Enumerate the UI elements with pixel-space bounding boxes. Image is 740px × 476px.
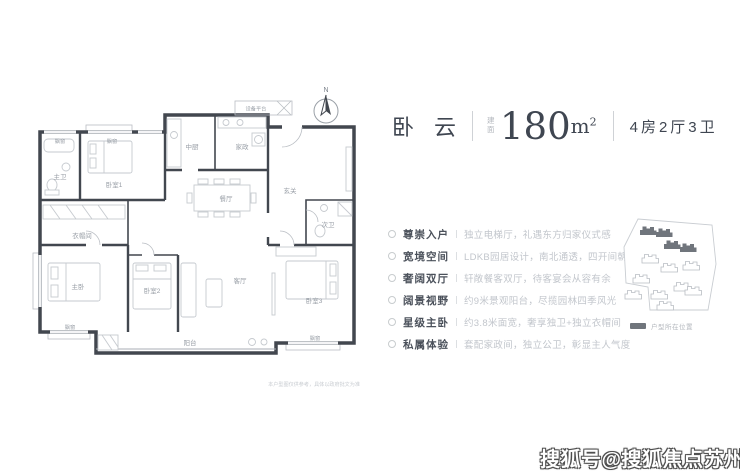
feature-desc: 约3.8米面宽，奢享独卫+独立衣帽间	[464, 315, 621, 329]
room-label-master-bath: 主卫	[54, 172, 68, 181]
area-unit: m2	[571, 114, 597, 138]
legend-swatch	[630, 323, 646, 329]
area-value: 180	[500, 108, 571, 145]
feature-desc: 轩敞餐客双厅，待客宴会从容有余	[464, 271, 611, 285]
feature-label: 宽境空间	[403, 249, 449, 264]
room-label-bedroom3: 卧室3	[306, 296, 323, 305]
feature-divider	[456, 252, 457, 260]
room-label-dining: 餐厅	[220, 194, 234, 203]
room-label-bay-window: 飘窗	[55, 137, 65, 145]
compass-north-label: N	[323, 87, 328, 94]
feature-row: 阔景视野 约9米景观阳台，尽揽园林四季风光	[388, 295, 637, 305]
feature-desc: LDKB园居设计，南北通透，四开间朝南	[464, 249, 637, 263]
area-prefix: 建面	[487, 117, 497, 134]
feature-label: 尊崇入户	[403, 227, 449, 242]
feature-row: 尊崇入户 独立电梯厅，礼遇东方归家仪式感	[388, 229, 637, 239]
room-label-bath2: 次卫	[322, 220, 336, 229]
bullet-ring-icon	[388, 252, 396, 260]
feature-row: 星级主卧 约3.8米面宽，奢享独卫+独立衣帽间	[388, 317, 637, 327]
room-label-laundry: 家政	[236, 142, 250, 151]
feature-label: 阔景视野	[403, 293, 449, 308]
site-plan-map	[616, 214, 728, 318]
header-divider	[613, 111, 614, 141]
plan-disclaimer: 本户型图仅供参考，具体以政府批文为准	[248, 380, 360, 388]
unit-name: 卧云	[392, 110, 476, 142]
feature-list: 尊崇入户 独立电梯厅，礼遇东方归家仪式感 宽境空间 LDKB园居设计，南北通透，…	[388, 229, 637, 349]
room-label-closet: 衣帽间	[72, 231, 92, 240]
room-label-bay-window: 飘窗	[65, 323, 75, 331]
feature-row: 私属体验 套配家政间，独立公卫，彰显主人气度	[388, 339, 637, 349]
compass-icon: N	[306, 84, 346, 130]
feature-label: 私属体验	[403, 337, 449, 352]
bullet-ring-icon	[388, 274, 396, 282]
bullet-ring-icon	[388, 318, 396, 326]
bullet-ring-icon	[388, 296, 396, 304]
bullet-ring-icon	[388, 340, 396, 348]
area-unit-m: m	[571, 114, 590, 138]
feature-desc: 独立电梯厅，礼遇东方归家仪式感	[464, 227, 611, 241]
unit-header: 卧云 建面 180 m2 4房2厅3卫	[392, 104, 718, 148]
room-label-living: 客厅	[234, 276, 248, 285]
watermark-text: 搜狐号@搜狐焦点苏州站	[540, 443, 740, 472]
feature-row: 奢阔双厅 轩敞餐客双厅，待客宴会从容有余	[388, 273, 637, 283]
room-label-kitchen-mid: 中厨	[186, 142, 200, 151]
room-spec: 4房2厅3卫	[630, 116, 718, 137]
feature-row: 宽境空间 LDKB园居设计，南北通透，四开间朝南	[388, 251, 637, 261]
feature-label: 星级主卧	[403, 315, 449, 330]
room-label-foyer: 玄关	[284, 186, 298, 195]
legend-text: 户型所在位置	[651, 321, 693, 331]
site-map-legend: 户型所在位置	[630, 321, 693, 331]
feature-desc: 套配家政间，独立公卫，彰显主人气度	[464, 337, 631, 351]
header-divider	[472, 111, 473, 141]
feature-divider	[456, 340, 457, 348]
feature-divider	[456, 230, 457, 238]
room-label-bedroom1: 卧室1	[106, 180, 123, 189]
room-label-equipment: 设备平台	[246, 105, 267, 113]
room-label-master-bedroom: 主卧	[72, 282, 86, 291]
feature-label: 奢阔双厅	[403, 271, 449, 286]
room-label-bedroom2: 卧室2	[144, 286, 161, 295]
feature-divider	[456, 318, 457, 326]
feature-divider	[456, 296, 457, 304]
area-unit-sup: 2	[590, 115, 597, 128]
room-label-balcony: 阳台	[184, 338, 197, 347]
bullet-ring-icon	[388, 230, 396, 238]
feature-desc: 约9米景观阳台，尽揽园林四季风光	[464, 293, 617, 307]
feature-divider	[456, 274, 457, 282]
floor-plan-diagram: 飘窗 飘窗 主卫 卧室1 衣帽间 主卧 中厨 家政 餐厅 玄关 客厅 卧室2 次…	[30, 95, 360, 365]
room-label-bay-window: 飘窗	[310, 334, 320, 342]
room-label-bay-window: 飘窗	[107, 137, 117, 145]
